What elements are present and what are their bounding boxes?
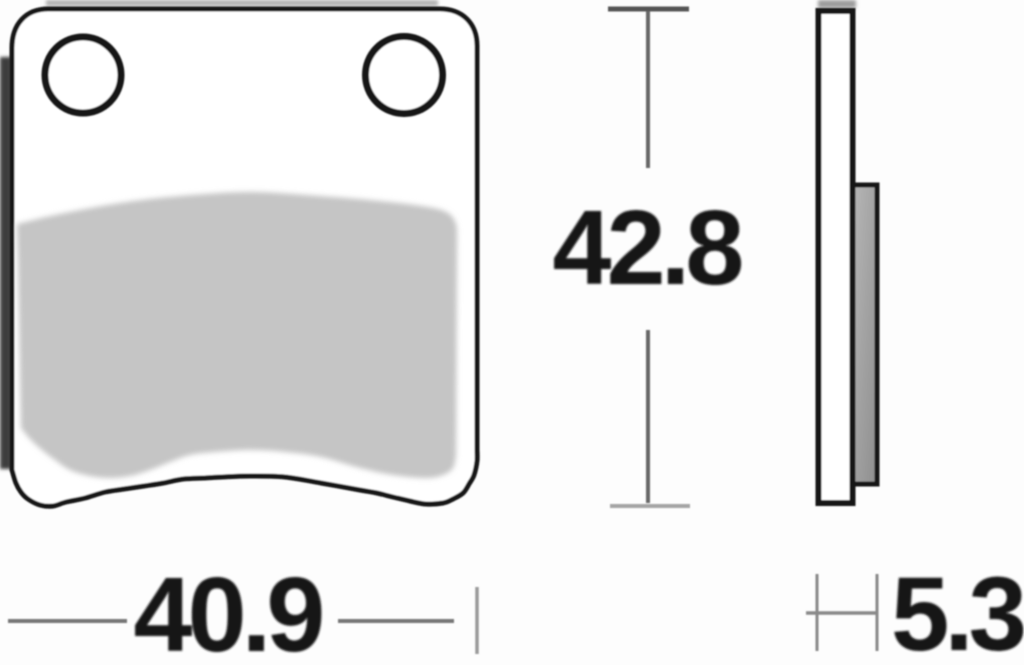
- svg-text:40.9: 40.9: [133, 556, 322, 665]
- svg-text:42.8: 42.8: [552, 189, 741, 307]
- svg-text:5.3: 5.3: [891, 556, 1024, 665]
